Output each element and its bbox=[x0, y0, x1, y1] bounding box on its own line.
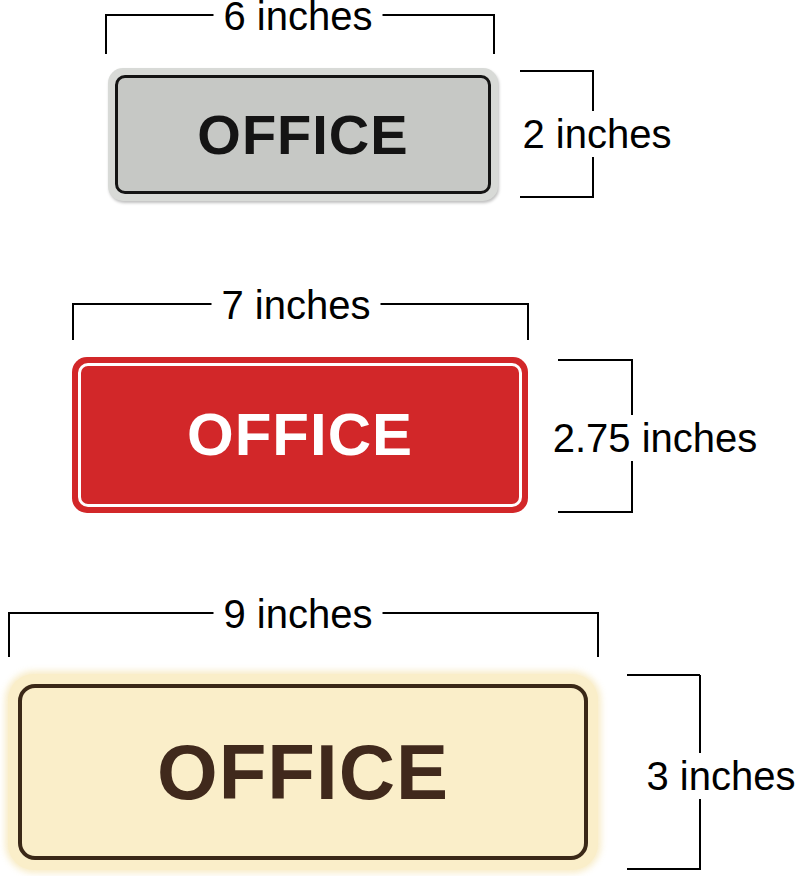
width-dimension-label: 7 inches bbox=[212, 282, 381, 328]
dimension-tick bbox=[8, 612, 10, 657]
sign-text: OFFICE bbox=[187, 405, 413, 465]
dimension-tick bbox=[520, 196, 594, 198]
dimension-tick bbox=[527, 303, 529, 340]
sign-text: OFFICE bbox=[157, 733, 449, 811]
dimension-tick bbox=[493, 14, 495, 54]
office-sign-6x2: OFFICE bbox=[108, 68, 498, 201]
height-dimension-label: 3 inches bbox=[637, 753, 795, 799]
dimension-tick bbox=[72, 303, 74, 340]
sign-text: OFFICE bbox=[197, 107, 408, 163]
dimension-tick bbox=[558, 359, 633, 361]
dimension-tick bbox=[105, 14, 107, 54]
dimension-tick bbox=[558, 511, 633, 513]
width-dimension-label: 9 inches bbox=[214, 591, 383, 637]
height-dimension-label: 2.75 inches bbox=[543, 415, 768, 461]
width-dimension-label: 6 inches bbox=[214, 0, 383, 39]
dimension-tick bbox=[627, 674, 700, 676]
product-dimension-diagram: 6 inches OFFICE 2 inches 7 inches OFFICE… bbox=[0, 0, 795, 876]
dimension-tick bbox=[597, 612, 599, 657]
office-sign-9x3: OFFICE bbox=[8, 674, 598, 870]
sign-face: OFFICE bbox=[78, 363, 522, 507]
sign-face: OFFICE bbox=[115, 75, 491, 194]
height-dimension-label: 2 inches bbox=[513, 111, 682, 157]
sign-face: OFFICE bbox=[18, 684, 588, 860]
office-sign-7x2.75: OFFICE bbox=[72, 357, 528, 513]
dimension-tick bbox=[520, 70, 594, 72]
dimension-tick bbox=[627, 868, 700, 870]
